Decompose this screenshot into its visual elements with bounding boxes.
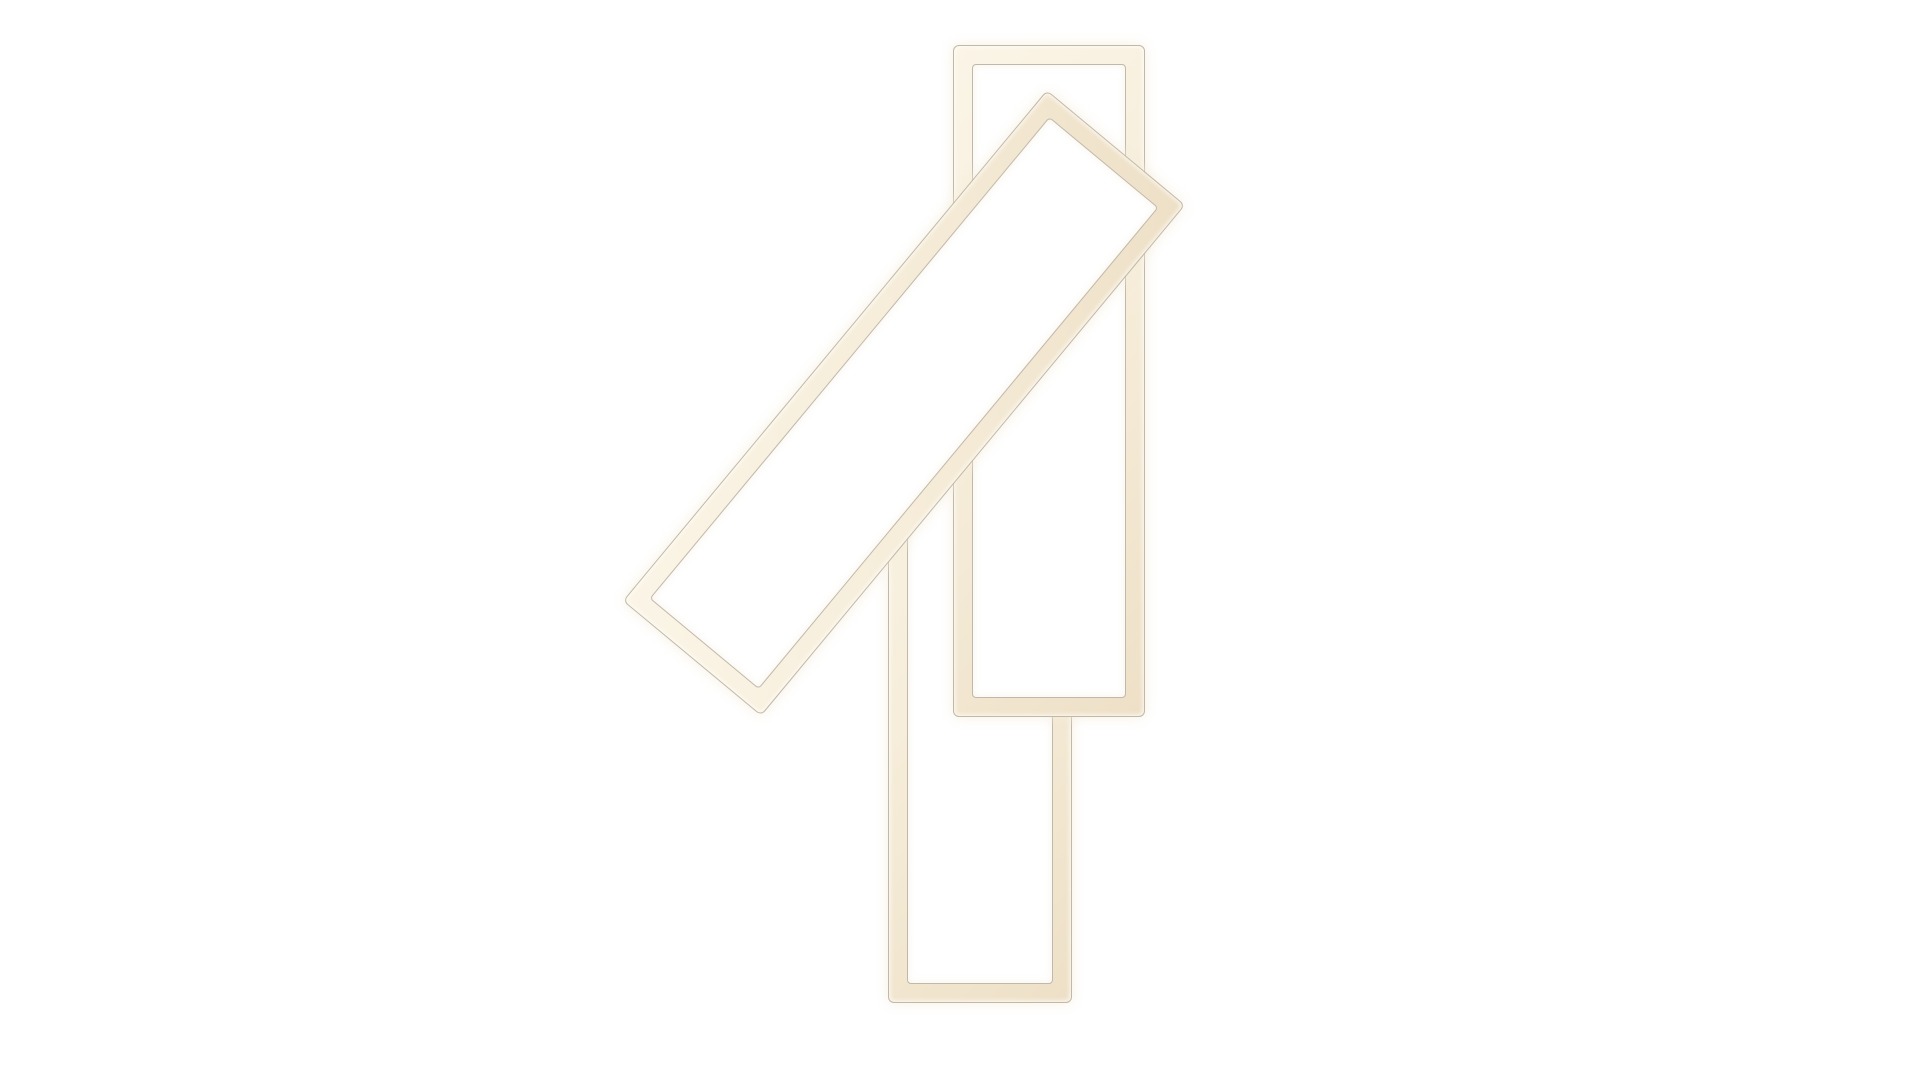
product-photo <box>0 0 1920 1080</box>
